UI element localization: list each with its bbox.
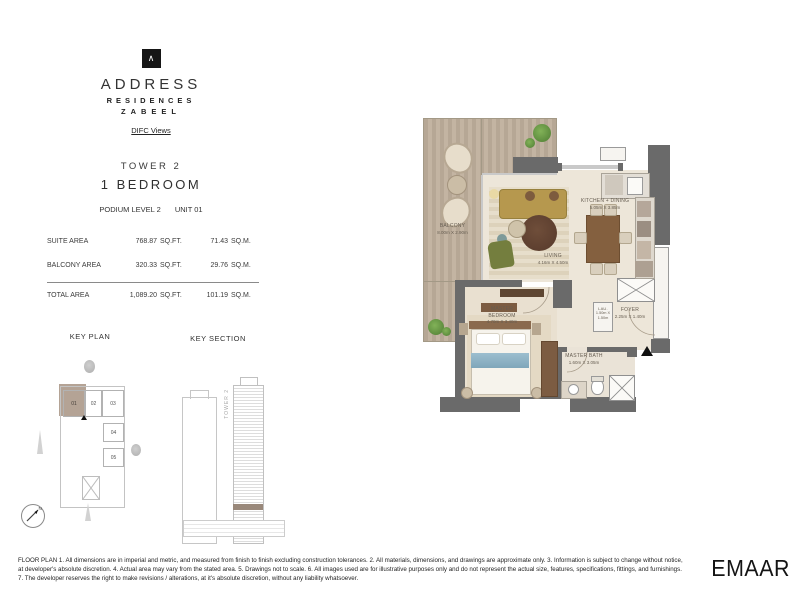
brand-zabeel: ZABEEL (61, 107, 241, 116)
key-plan-unit-02: 02 (85, 390, 102, 417)
section-level-highlight (233, 504, 263, 510)
living-label: LIVING 4.16m X 4.50m (533, 253, 573, 265)
balcony-area-sqft: 320.33 (119, 262, 157, 269)
cushion (549, 191, 559, 201)
plant-icon (525, 138, 535, 148)
balcony-area-sqm: 29.76 (188, 262, 228, 269)
tv-console (500, 289, 544, 297)
compass-icon: N (21, 504, 45, 528)
podium-level-label: PODIUM LEVEL 2 (99, 205, 160, 214)
disclaimer-line-2: at developer's absolute discretion. 4. A… (18, 565, 708, 574)
key-section-title: KEY SECTION (183, 334, 253, 343)
kitchen-label: KITCHEN + DINING 5.05m X 3.85m (575, 198, 635, 210)
suite-area-sqm: 71.43 (188, 238, 228, 245)
appliance (637, 221, 651, 237)
area-row-balcony: BALCONY AREA 320.33 SQ.FT. 29.76 SQ.M. (47, 262, 259, 271)
brand-block: ∧ ADDRESS RESIDENCES ZABEEL DIFC Views (61, 48, 241, 135)
bath-sink (568, 384, 579, 395)
appliance (637, 241, 651, 259)
emaar-logo: EMAAR (710, 556, 790, 583)
balcony-area-label: BALCONY AREA (47, 262, 119, 269)
pillow (476, 333, 500, 345)
brand-name: ADDRESS (61, 76, 241, 93)
suite-area-label: SUITE AREA (47, 238, 119, 245)
bed-runner (471, 353, 529, 368)
appliance (637, 201, 651, 217)
key-plan-unit-01: 01 (63, 390, 85, 417)
disclaimer: FLOOR PLAN 1. All dimensions are in impe… (18, 556, 708, 583)
dining-chair (619, 232, 632, 244)
area-row-total: TOTAL AREA 1,089.20 SQ.FT. 101.19 SQ.M. (47, 292, 259, 301)
nightstand (459, 323, 468, 335)
foyer-label: FOYER 2.25m X 1.40m (610, 307, 650, 319)
plant-icon (533, 124, 551, 142)
fridge (635, 261, 653, 277)
dining-table (586, 215, 620, 263)
key-section: TOWER 2 (175, 362, 290, 542)
unit-number-label: UNIT 01 (175, 205, 203, 214)
outdoor-table (447, 175, 467, 195)
sqft-unit: SQ.FT. (157, 238, 188, 245)
dining-chair (590, 263, 603, 275)
toilet-tank (591, 376, 604, 382)
sqm-unit: SQ.M. (228, 262, 259, 269)
unit-marker-icon (81, 415, 87, 420)
bath-label: MASTER BATH 1.60m X 3.05m (560, 353, 608, 365)
tree-icon (131, 444, 141, 456)
landmark-spire-icon (37, 430, 43, 454)
key-plan: 01 02 03 04 05 N (15, 358, 150, 536)
address-logo-icon: ∧ (142, 49, 161, 68)
tower2-label: TOWER 2 (224, 389, 230, 419)
coffee-table (508, 220, 526, 238)
nightstand (532, 323, 541, 335)
cushion (525, 191, 535, 201)
views-label: DIFC Views (61, 126, 241, 135)
sqft-unit: SQ.FT. (157, 292, 188, 299)
level-unit-row: PODIUM LEVEL 2 UNIT 01 (61, 205, 241, 214)
total-area-label: TOTAL AREA (47, 292, 119, 299)
landmark-spire-icon (85, 503, 91, 521)
round-rug (521, 215, 557, 251)
total-area-sqft: 1,089.20 (119, 292, 157, 299)
podium-outline (183, 520, 285, 537)
balcony-label: BALCONY 8.00m X 2.90m (423, 223, 482, 235)
tower-title: TOWER 2 (61, 161, 241, 172)
total-area-sqm: 101.19 (188, 292, 228, 299)
sqft-unit: SQ.FT. (157, 262, 188, 269)
floor-plan: BALCONY 8.00m X 2.90m LIVING 4.16m X 4.5… (405, 95, 705, 435)
area-table: SUITE AREA 768.87 SQ.FT. 71.43 SQ.M. BAL… (47, 238, 259, 316)
sqm-unit: SQ.M. (228, 238, 259, 245)
disclaimer-line-1: FLOOR PLAN 1. All dimensions are in impe… (18, 556, 708, 565)
armchair (487, 239, 515, 269)
floor-lamp (489, 189, 499, 199)
area-row-suite: SUITE AREA 768.87 SQ.FT. 71.43 SQ.M. (47, 238, 259, 247)
brand-residences: RESIDENCES (61, 96, 241, 105)
key-plan-unit-03: 03 (102, 390, 124, 417)
wardrobe (541, 341, 558, 397)
stool (461, 387, 473, 399)
core-shaft (82, 476, 100, 500)
key-plan-title: KEY PLAN (55, 332, 125, 341)
entry-arrow-icon (641, 346, 653, 356)
table-divider (47, 282, 259, 283)
key-plan-unit-05: 05 (103, 448, 124, 467)
plant-icon (442, 327, 451, 336)
sqm-unit: SQ.M. (228, 292, 259, 299)
disclaimer-line-3: 7. The developer reserves the right to m… (18, 574, 708, 583)
cooktop (605, 175, 623, 195)
dining-chair (574, 232, 587, 244)
key-plan-unit-04: 04 (103, 423, 124, 442)
kitchen-sink (627, 177, 643, 195)
laundry-label: LAU. 1.50m X 1.50m (592, 306, 614, 321)
tree-icon (84, 360, 95, 373)
svg-text:N: N (39, 506, 42, 511)
pillow (502, 333, 526, 345)
unit-type-title: 1 BEDROOM (61, 177, 241, 192)
suite-area-sqft: 768.87 (119, 238, 157, 245)
bedroom-label: MASTER BEDROOM 4.70m X 3.40m (483, 306, 521, 325)
dining-chair (604, 263, 617, 275)
